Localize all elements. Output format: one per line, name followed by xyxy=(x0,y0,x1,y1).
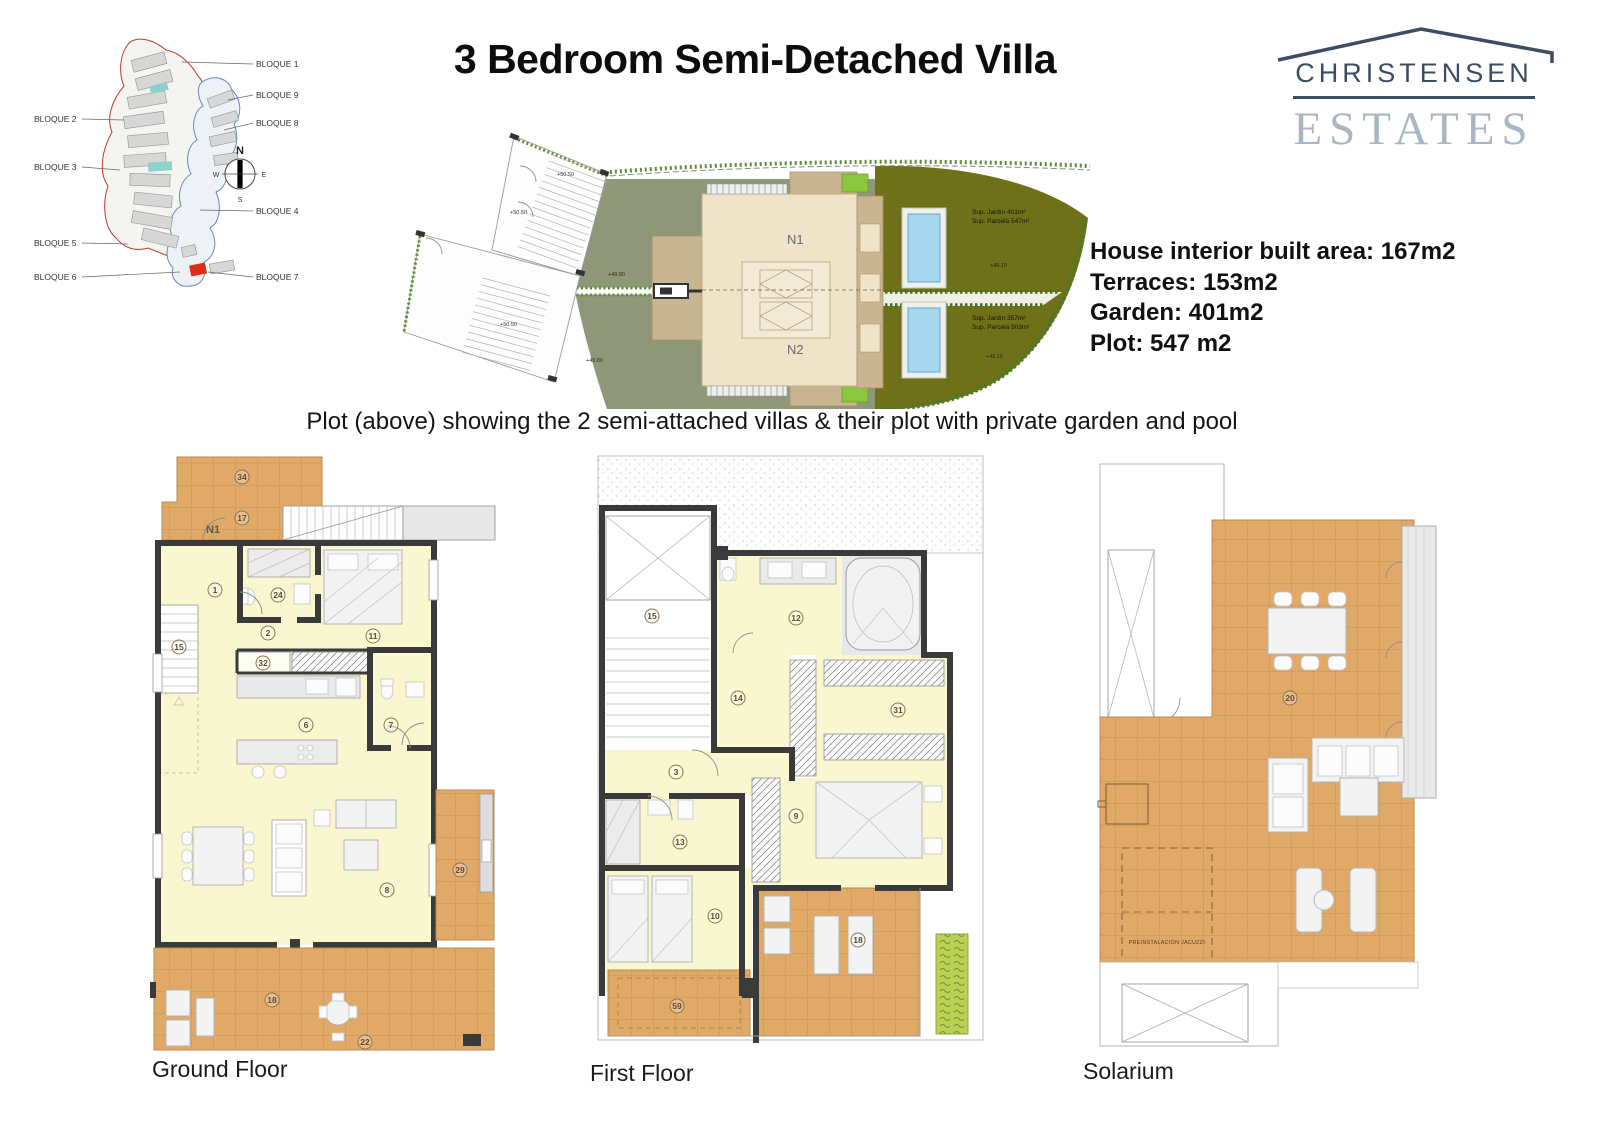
level-3: +50.50 xyxy=(500,322,517,328)
site-location-map: BLOQUE 1 BLOQUE 9 BLOQUE 8 BLOQUE 4 BLOQ… xyxy=(32,22,312,312)
plot-terraces: +50.50 +50.50 +50.50 xyxy=(404,133,610,382)
svg-text:31: 31 xyxy=(893,705,903,715)
spec-block: House interior built area: 167m2 Terrace… xyxy=(1090,237,1455,359)
svg-text:14: 14 xyxy=(733,693,743,703)
room-number-24: 24 xyxy=(271,588,285,602)
svg-text:12: 12 xyxy=(791,613,801,623)
terrace-18 xyxy=(756,888,920,1036)
jardin-top: Sup. Jardín 401m² xyxy=(972,209,1026,216)
spec-garden: Garden: 401m2 xyxy=(1090,298,1455,329)
compass-e: E xyxy=(262,172,267,179)
parcela-top: Sup. Parcela 547m² xyxy=(972,218,1030,225)
svg-text:15: 15 xyxy=(647,611,657,621)
first-floor-label: First Floor xyxy=(590,1060,694,1087)
svg-text:32: 32 xyxy=(258,658,268,668)
pool-n1 xyxy=(902,208,946,288)
spec-plot: Plot: 547 m2 xyxy=(1090,329,1455,360)
solarium-label: Solarium xyxy=(1083,1058,1174,1085)
label-bloque-7: BLOQUE 7 xyxy=(256,272,299,282)
pool-n2 xyxy=(902,302,946,378)
spec-built-area: House interior built area: 167m2 xyxy=(1090,237,1455,268)
label-bloque-6: BLOQUE 6 xyxy=(34,272,77,282)
room-number-18: 18 xyxy=(265,993,279,1007)
room-number-7: 7 xyxy=(384,718,398,732)
bedroom-main xyxy=(324,550,402,624)
level-1: +50.50 xyxy=(557,172,574,178)
room-number-31: 31 xyxy=(891,703,905,717)
svg-text:20: 20 xyxy=(1285,693,1295,703)
svg-text:1: 1 xyxy=(213,585,218,595)
map-pool xyxy=(148,161,173,172)
room-number-12: 12 xyxy=(789,611,803,625)
svg-text:13: 13 xyxy=(675,837,685,847)
label-bloque-4: BLOQUE 4 xyxy=(256,206,299,216)
room-number-6: 6 xyxy=(299,718,313,732)
svg-text:18: 18 xyxy=(267,995,277,1005)
skylight-void xyxy=(1100,962,1418,1046)
level-5: +49.80 xyxy=(586,358,603,364)
room-number-20: 20 xyxy=(1283,691,1297,705)
svg-text:7: 7 xyxy=(389,720,394,730)
logo-type: ESTATES xyxy=(1268,102,1560,156)
svg-text:2: 2 xyxy=(266,628,271,638)
unit-n1-label: N1 xyxy=(787,232,804,247)
svg-text:34: 34 xyxy=(237,472,247,482)
room-number-15: 15 xyxy=(172,640,186,654)
room-number-59: 59 xyxy=(670,999,684,1013)
company-logo: CHRISTENSEN ESTATES xyxy=(1268,22,1560,156)
unit-label: N1 xyxy=(206,524,220,536)
label-bloque-9: BLOQUE 9 xyxy=(256,90,299,100)
svg-text:11: 11 xyxy=(369,631,378,641)
exterior-stairs xyxy=(283,506,495,540)
compass-n: N xyxy=(236,145,244,157)
level-2: +50.50 xyxy=(510,210,527,216)
room-number-29: 29 xyxy=(453,863,467,877)
page-title: 3 Bedroom Semi-Detached Villa xyxy=(360,36,1150,83)
svg-text:59: 59 xyxy=(672,1001,682,1011)
label-bloque-3: BLOQUE 3 xyxy=(34,162,77,172)
wardrobe-hatch xyxy=(292,652,370,673)
plot-plan: Sup. Jardín 401m² Sup. Parcela 547m² +49… xyxy=(402,124,1092,409)
level-garden-bottom: +49.10 xyxy=(986,354,1003,360)
level-4: +49.80 xyxy=(608,272,625,278)
svg-text:22: 22 xyxy=(360,1037,370,1047)
room-number-18f: 18 xyxy=(851,933,865,947)
first-floor-plan: 15 12 14 31 3 13 9 10 18 59 xyxy=(588,448,988,1048)
svg-text:3: 3 xyxy=(674,767,679,777)
label-bloque-5: BLOQUE 5 xyxy=(34,238,77,248)
label-bloque-2: BLOQUE 2 xyxy=(34,114,77,124)
parcela-bottom: Sup. Parcela 503m² xyxy=(972,324,1030,331)
svg-text:18: 18 xyxy=(853,935,863,945)
svg-text:15: 15 xyxy=(174,642,184,652)
solarium-plan: PREINSTALACION JACUZZI 20 xyxy=(1072,452,1442,1052)
svg-text:8: 8 xyxy=(385,885,390,895)
compass-w: W xyxy=(213,172,220,179)
svg-text:9: 9 xyxy=(794,811,799,821)
room-number-3: 3 xyxy=(669,765,683,779)
room-number-22: 22 xyxy=(358,1035,372,1049)
ground-floor-label: Ground Floor xyxy=(152,1056,288,1083)
svg-text:10: 10 xyxy=(710,911,720,921)
label-bloque-1: BLOQUE 1 xyxy=(256,59,299,69)
spec-terraces: Terraces: 153m2 xyxy=(1090,268,1455,299)
jacuzzi-note: PREINSTALACION JACUZZI xyxy=(1129,940,1205,946)
room-number-17: 17 xyxy=(235,511,249,525)
room-number-1: 1 xyxy=(208,583,222,597)
compass-s: S xyxy=(238,197,243,204)
logo-name: CHRISTENSEN xyxy=(1293,58,1535,99)
room-number-14: 14 xyxy=(731,691,745,705)
terrace-bottom xyxy=(150,948,494,1050)
plot-caption: Plot (above) showing the 2 semi-attached… xyxy=(250,408,1294,436)
room-number-13: 13 xyxy=(673,835,687,849)
room-number-2: 2 xyxy=(261,626,275,640)
svg-text:6: 6 xyxy=(304,720,309,730)
room-number-10: 10 xyxy=(708,909,722,923)
room-number-34: 34 xyxy=(235,470,249,484)
room-number-32: 32 xyxy=(256,656,270,670)
stair-block-solarium xyxy=(1100,464,1224,724)
ground-floor-plan: 34 17 N1 xyxy=(148,442,503,1057)
planter xyxy=(936,934,968,1034)
room-number-11: 11 xyxy=(366,629,380,643)
label-bloque-8: BLOQUE 8 xyxy=(256,118,299,128)
room-number-8: 8 xyxy=(380,883,394,897)
unit-n2-label: N2 xyxy=(787,342,804,357)
svg-text:17: 17 xyxy=(237,513,247,523)
level-garden-top: +49.10 xyxy=(990,263,1007,269)
closet-9 xyxy=(752,778,780,882)
lime-patch xyxy=(842,174,868,192)
stairwell-first xyxy=(602,508,714,750)
room-number-15f: 15 xyxy=(645,609,659,623)
brochure-page: BLOQUE 1 BLOQUE 9 BLOQUE 8 BLOQUE 4 BLOQ… xyxy=(0,0,1600,1131)
svg-text:24: 24 xyxy=(273,590,283,600)
room-number-9: 9 xyxy=(789,809,803,823)
jardin-bottom: Sup. Jardín 357m² xyxy=(972,315,1026,322)
solarium-dining xyxy=(1268,592,1346,670)
svg-text:29: 29 xyxy=(455,865,465,875)
